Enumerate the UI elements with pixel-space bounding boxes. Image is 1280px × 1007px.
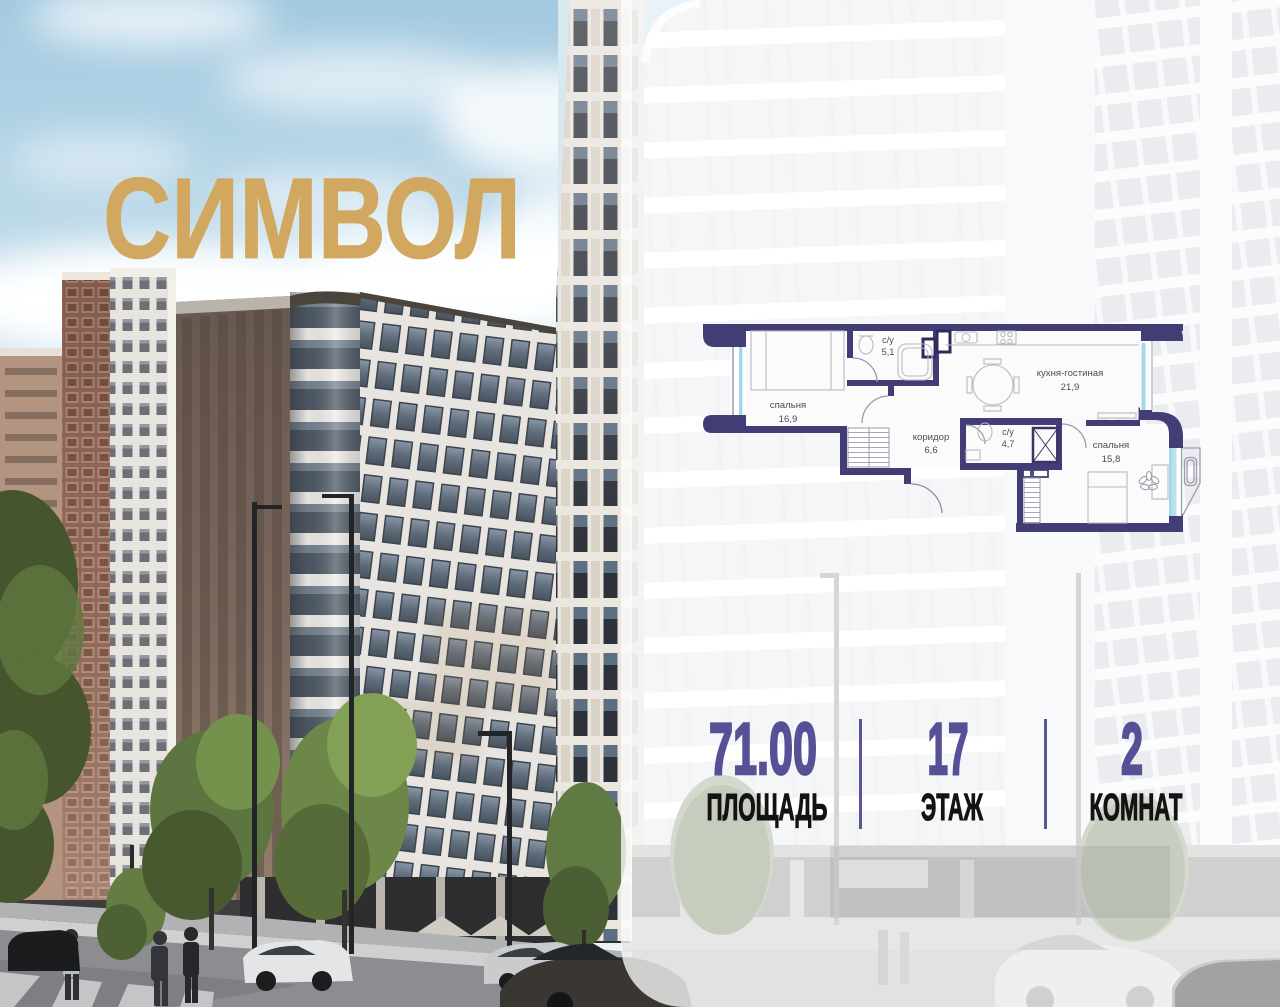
svg-text:кухня-гостиная: кухня-гостиная [1037, 368, 1104, 379]
svg-text:6,6: 6,6 [924, 445, 937, 456]
svg-text:ЭТАЖ: ЭТАЖ [921, 787, 983, 829]
svg-text:16,9: 16,9 [779, 414, 798, 425]
svg-text:2: 2 [1121, 709, 1143, 790]
svg-text:спальня: спальня [770, 400, 806, 411]
svg-text:4,7: 4,7 [1002, 439, 1015, 449]
svg-text:коридор: коридор [913, 432, 950, 443]
svg-text:с/у: с/у [1002, 427, 1014, 437]
svg-text:КОМНАТ: КОМНАТ [1090, 787, 1183, 829]
svg-text:5,1: 5,1 [882, 347, 895, 357]
svg-text:21,9: 21,9 [1061, 382, 1080, 393]
svg-text:71.00: 71.00 [709, 709, 817, 790]
svg-text:15,8: 15,8 [1102, 454, 1121, 465]
svg-text:17: 17 [928, 709, 969, 790]
svg-text:спальня: спальня [1093, 440, 1129, 451]
svg-text:ПЛОЩАДЬ: ПЛОЩАДЬ [707, 787, 828, 829]
svg-text:СИМВОЛ: СИМВОЛ [103, 160, 521, 280]
svg-text:с/у: с/у [882, 335, 894, 345]
